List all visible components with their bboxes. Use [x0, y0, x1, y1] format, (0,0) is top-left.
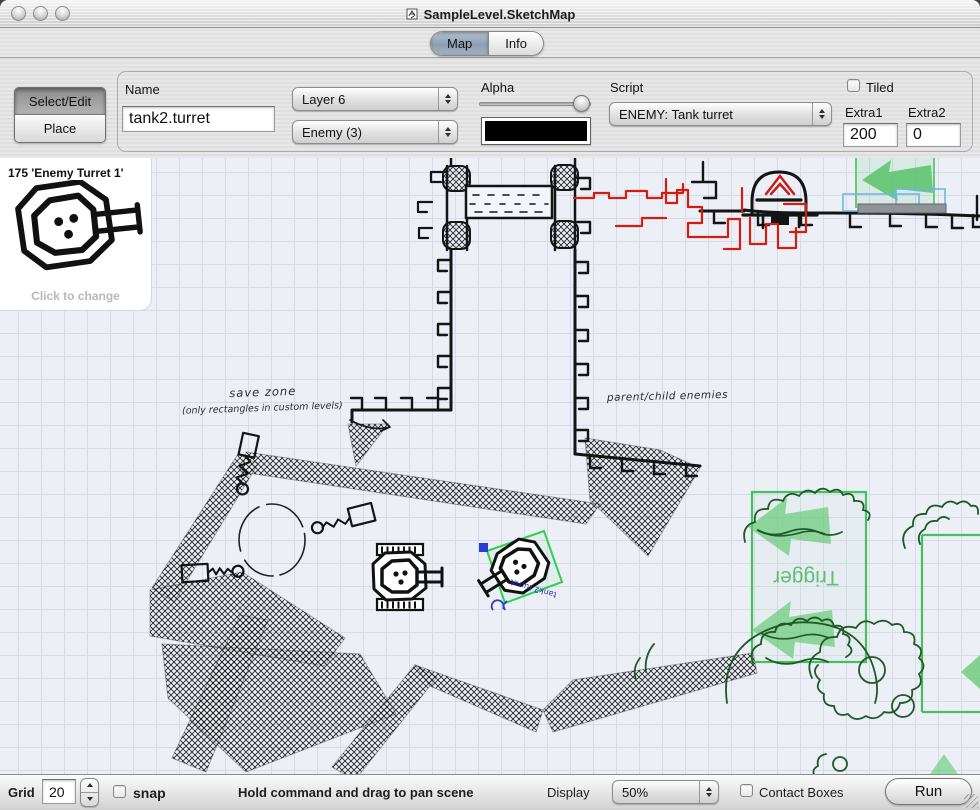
popup-arrows-icon	[438, 88, 457, 110]
alpha-label: Alpha	[481, 80, 514, 95]
grid-stepper	[80, 778, 99, 807]
stepper-up-button[interactable]	[81, 779, 98, 793]
extra2-label: Extra2	[908, 105, 946, 120]
run-button[interactable]: Run	[885, 778, 972, 805]
script-select-value: ENEMY: Tank turret	[619, 107, 733, 122]
display-zoom-select[interactable]: 50%	[612, 780, 719, 804]
popup-arrows-icon	[812, 103, 831, 125]
extra2-input[interactable]	[906, 123, 961, 147]
app-window: SampleLevel.SketchMap Map Info Select/Ed…	[0, 0, 980, 810]
view-segmented-control: Map Info	[430, 31, 544, 56]
select-edit-button[interactable]: Select/Edit	[15, 88, 105, 115]
preview-title: 175 'Enemy Turret 1'	[8, 166, 124, 180]
title-bar[interactable]: SampleLevel.SketchMap	[0, 0, 980, 28]
spawn-band-sketch	[843, 158, 946, 213]
contact-boxes-checkbox[interactable]	[740, 784, 753, 797]
name-label: Name	[125, 82, 160, 97]
tiled-checkbox[interactable]	[847, 79, 860, 92]
color-swatch[interactable]	[481, 117, 591, 145]
map-canvas[interactable]: save zone (only rectangles in custom lev…	[0, 158, 980, 774]
contact-boxes-label: Contact Boxes	[759, 785, 844, 800]
circle-sketch	[239, 504, 305, 576]
save-zone-note-2: (only rectangles in custom levels)	[182, 400, 343, 417]
layer-select-value: Layer 6	[302, 92, 345, 107]
stepper-down-button[interactable]	[81, 793, 98, 807]
corridor-walls-sketch	[350, 158, 700, 476]
pan-hint: Hold command and drag to pan scene	[238, 785, 473, 800]
trigger-label: Trigger	[773, 566, 839, 589]
tab-strip: Map Info	[0, 28, 980, 58]
popup-arrows-icon	[438, 121, 457, 143]
resize-grip[interactable]	[964, 794, 978, 808]
extra1-input[interactable]	[843, 123, 898, 147]
snap-label: snap	[133, 785, 166, 801]
popup-arrows-icon	[699, 781, 718, 803]
script-label: Script	[610, 80, 643, 95]
preview-turret-sketch	[0, 180, 152, 290]
status-bar: Grid snap Hold command and drag to pan s…	[0, 774, 980, 810]
place-button[interactable]: Place	[15, 115, 105, 142]
tiled-label: Tiled	[866, 80, 894, 95]
window-title-area: SampleLevel.SketchMap	[0, 0, 980, 28]
object-toolbar: Select/Edit Place Name Layer 6 Enemy (3)…	[0, 58, 980, 158]
category-select[interactable]: Enemy (3)	[292, 120, 458, 144]
mode-buttons: Select/Edit Place	[14, 87, 106, 143]
document-sketch-icon	[405, 7, 419, 21]
selected-turret[interactable]: tank2.turret	[471, 531, 562, 610]
save-zone-note: save zone	[229, 384, 296, 400]
object-preview-panel[interactable]: 175 'Enemy Turret 1' Click to change	[0, 158, 152, 311]
alpha-slider-thumb[interactable]	[573, 95, 590, 112]
color-swatch-value	[485, 121, 587, 141]
preview-hint: Click to change	[0, 289, 151, 303]
script-select[interactable]: ENEMY: Tank turret	[609, 102, 832, 126]
display-label: Display	[547, 785, 590, 800]
window-title: SampleLevel.SketchMap	[424, 7, 576, 22]
grid-label: Grid	[8, 785, 35, 800]
extra1-label: Extra1	[845, 105, 883, 120]
selection-handle[interactable]	[479, 543, 488, 552]
tab-map[interactable]: Map	[431, 32, 489, 55]
layer-select[interactable]: Layer 6	[292, 87, 458, 111]
grid-size-input[interactable]	[42, 779, 76, 804]
tab-info[interactable]: Info	[489, 32, 543, 55]
turret-b-sketch[interactable]	[373, 544, 442, 610]
name-input[interactable]	[122, 106, 275, 132]
snap-checkbox[interactable]	[113, 785, 126, 798]
display-zoom-value: 50%	[622, 785, 648, 800]
trigger-arrow-icon	[961, 655, 980, 689]
enemies-note: parent/child enemies	[606, 389, 728, 404]
handwritten-notes: save zone (only rectangles in custom lev…	[181, 382, 728, 417]
category-select-value: Enemy (3)	[302, 125, 362, 140]
